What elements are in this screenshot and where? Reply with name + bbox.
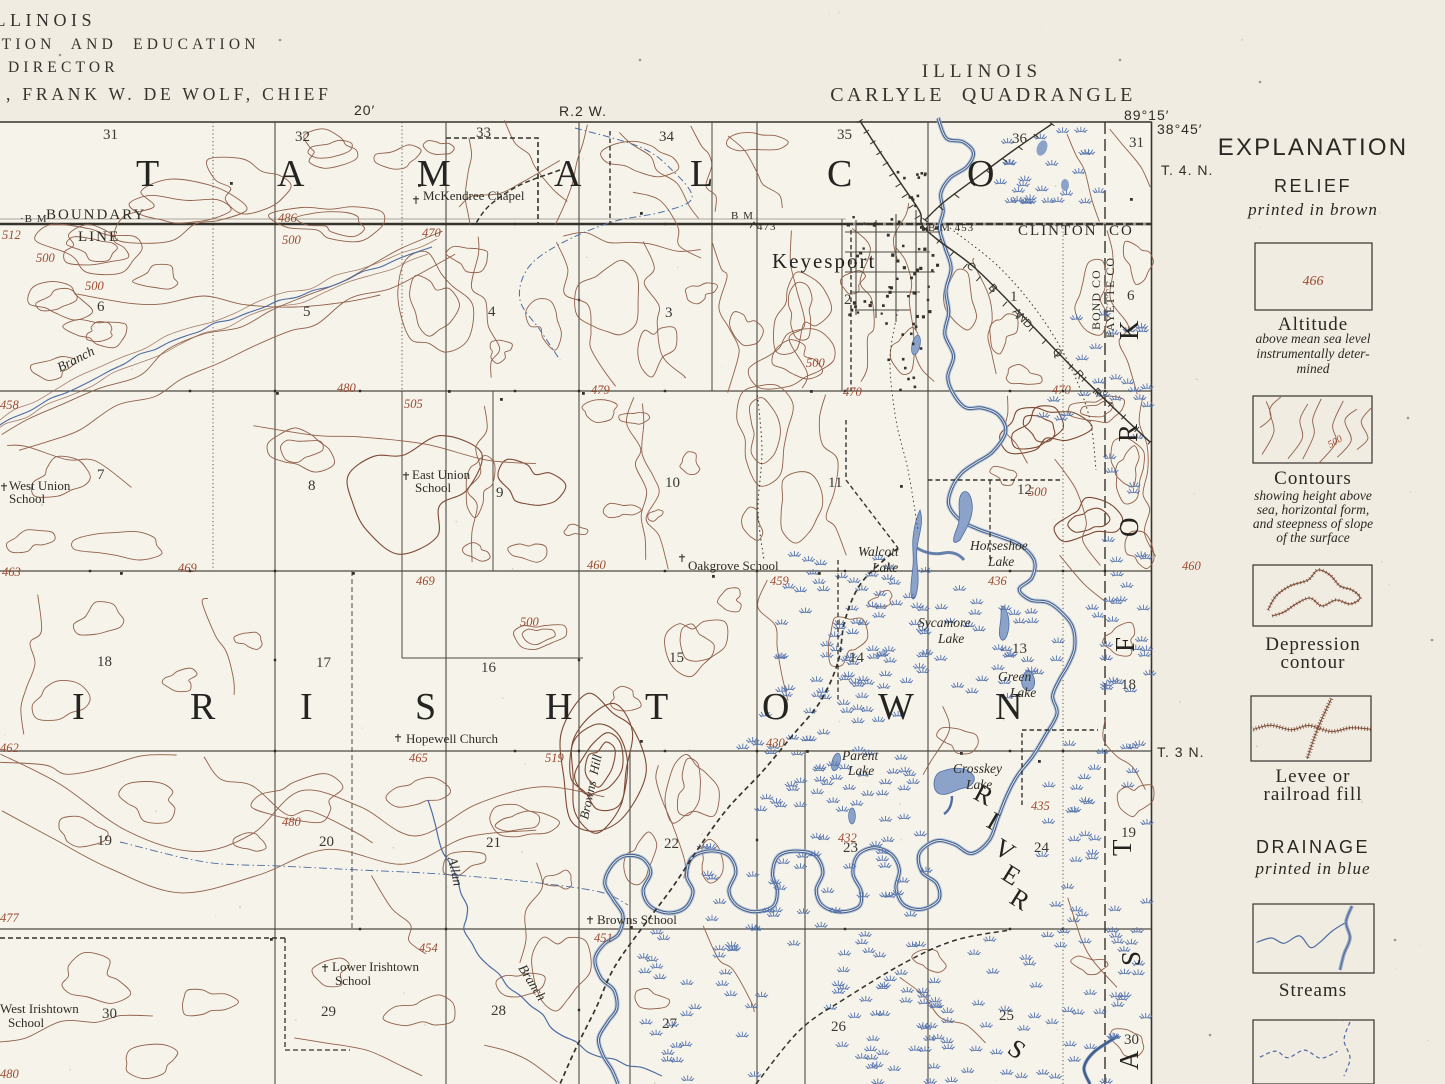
svg-text:500: 500 [282, 233, 302, 247]
svg-text:printed in blue: printed in blue [1254, 859, 1370, 878]
svg-text:A: A [1114, 1050, 1144, 1070]
svg-text:Walcott: Walcott [858, 544, 900, 559]
svg-text:15: 15 [669, 650, 684, 666]
svg-text:I: I [300, 686, 313, 728]
svg-text:451: 451 [594, 931, 613, 945]
svg-text:38°45′: 38°45′ [1157, 121, 1202, 137]
svg-text:519: 519 [545, 751, 565, 765]
svg-text:Lake: Lake [871, 560, 898, 575]
svg-text:and steepness of slope: and steepness of slope [1253, 516, 1373, 531]
svg-text:Lower Irishtown: Lower Irishtown [332, 959, 420, 974]
svg-text:sea, horizontal form,: sea, horizontal form, [1257, 502, 1370, 517]
svg-text:West Irishtown: West Irishtown [0, 1001, 79, 1016]
svg-text:CLINTON CO: CLINTON CO [1018, 223, 1134, 239]
svg-text:Keyesport: Keyesport [772, 249, 876, 273]
svg-text:5: 5 [303, 304, 311, 320]
svg-text:24: 24 [1034, 840, 1050, 856]
svg-text:32: 32 [295, 129, 310, 145]
svg-text:above mean sea level: above mean sea level [1255, 331, 1370, 346]
svg-text:480: 480 [337, 381, 357, 395]
svg-text:462: 462 [0, 741, 19, 755]
svg-text:showing height above: showing height above [1254, 488, 1372, 503]
svg-text:Lake: Lake [1009, 685, 1036, 700]
svg-text:500: 500 [36, 251, 56, 265]
svg-text:4: 4 [488, 304, 496, 320]
svg-text:470: 470 [843, 385, 863, 399]
svg-text:14: 14 [849, 650, 865, 666]
svg-text:ILLINOIS: ILLINOIS [922, 61, 1042, 82]
svg-text:505: 505 [404, 397, 423, 411]
svg-text:470: 470 [1052, 383, 1072, 397]
svg-text:17: 17 [316, 655, 332, 671]
svg-text:RELIEF: RELIEF [1274, 176, 1352, 196]
svg-text:BOND CO: BOND CO [1089, 269, 1103, 330]
svg-text:Horseshoe: Horseshoe [969, 538, 1028, 553]
svg-text:500: 500 [806, 356, 826, 370]
svg-text:Lake: Lake [965, 777, 992, 792]
svg-text:31: 31 [103, 127, 118, 143]
svg-text:19: 19 [97, 833, 112, 849]
svg-text:School: School [335, 973, 372, 988]
svg-text:30: 30 [102, 1006, 117, 1022]
svg-text:railroad fill: railroad fill [1264, 784, 1363, 805]
svg-text:Oakgrove School: Oakgrove School [688, 558, 779, 573]
svg-text:Parent: Parent [841, 748, 879, 763]
svg-text:I: I [72, 686, 85, 728]
svg-text:477: 477 [0, 911, 20, 925]
svg-text:A: A [554, 153, 582, 195]
svg-text:486: 486 [278, 211, 298, 225]
svg-text:Lake: Lake [847, 763, 874, 778]
svg-text:13: 13 [1012, 641, 1027, 657]
svg-text:430: 430 [766, 736, 786, 750]
svg-text:T. 3 N.: T. 3 N. [1157, 744, 1204, 760]
svg-text:18: 18 [1121, 677, 1136, 693]
svg-text:458: 458 [0, 398, 20, 412]
svg-text:·B M: ·B M [20, 213, 48, 225]
svg-text:EXPLANATION: EXPLANATION [1218, 134, 1408, 161]
svg-text:33: 33 [476, 125, 491, 141]
svg-text:DRAINAGE: DRAINAGE [1256, 837, 1370, 857]
svg-text:L: L [690, 153, 713, 195]
svg-text:Lake: Lake [987, 554, 1014, 569]
svg-text:6: 6 [97, 299, 105, 315]
svg-text:512: 512 [2, 228, 21, 242]
svg-text:21: 21 [486, 835, 501, 851]
svg-text:DIRECTOR: DIRECTOR [8, 59, 119, 76]
svg-text:of the surface: of the surface [1276, 530, 1350, 545]
svg-text:O: O [967, 153, 994, 195]
svg-text:printed in brown: printed in brown [1247, 200, 1378, 219]
svg-text:436: 436 [988, 574, 1008, 588]
svg-text:35: 35 [837, 127, 852, 143]
svg-text:36: 36 [1012, 131, 1028, 147]
svg-text:19: 19 [1121, 825, 1136, 841]
svg-text:469: 469 [178, 561, 198, 575]
svg-text:School: School [8, 1015, 45, 1030]
svg-text:LINE: LINE [78, 229, 120, 245]
svg-text:469: 469 [416, 574, 436, 588]
svg-text:T. 4. N.: T. 4. N. [1161, 162, 1213, 178]
svg-text:31: 31 [1129, 135, 1144, 151]
svg-text:22: 22 [664, 836, 679, 852]
svg-text:11: 11 [828, 475, 842, 491]
svg-text:466: 466 [1303, 274, 1324, 289]
svg-text:10: 10 [665, 475, 680, 491]
svg-text:Contours: Contours [1274, 468, 1352, 489]
svg-text:M: M [417, 153, 451, 195]
svg-text:500: 500 [520, 615, 540, 629]
svg-text:mined: mined [1297, 361, 1330, 376]
svg-text:6: 6 [1127, 288, 1135, 304]
svg-text:Green: Green [998, 669, 1031, 684]
svg-text:460: 460 [587, 558, 607, 572]
svg-text:20′: 20′ [354, 102, 375, 118]
svg-text:ILLINOIS: ILLINOIS [0, 10, 96, 30]
svg-text:463: 463 [2, 565, 21, 579]
svg-text:16: 16 [481, 660, 497, 676]
svg-text:465: 465 [409, 751, 428, 765]
svg-text:R: R [190, 686, 216, 728]
svg-text:FAYETTE CO: FAYETTE CO [1103, 257, 1117, 338]
svg-text:O: O [1114, 518, 1144, 538]
svg-text:T: T [1107, 839, 1137, 856]
svg-text:26: 26 [831, 1019, 847, 1035]
svg-text:School: School [415, 480, 452, 495]
svg-text:479: 479 [591, 383, 611, 397]
svg-text:Sycamore: Sycamore [918, 615, 971, 630]
svg-text:Browns School: Browns School [597, 912, 677, 927]
svg-text:Crosskey: Crosskey [953, 761, 1002, 776]
svg-text:8: 8 [308, 478, 316, 494]
svg-text:9: 9 [496, 485, 504, 501]
svg-text:instrumentally deter-: instrumentally deter- [1256, 346, 1370, 361]
svg-text:BOUNDARY: BOUNDARY [46, 207, 146, 223]
svg-text:29: 29 [321, 1004, 336, 1020]
svg-text:500: 500 [85, 279, 105, 293]
svg-text:34: 34 [659, 129, 675, 145]
svg-text:H: H [545, 686, 572, 728]
svg-text:ATION AND EDUCATION: ATION AND EDUCATION [0, 36, 260, 53]
svg-text:Hopewell Church: Hopewell Church [406, 731, 499, 746]
svg-text:480: 480 [282, 815, 302, 829]
svg-text:B M: B M [731, 210, 754, 222]
svg-text:2: 2 [844, 292, 852, 308]
svg-text:F: F [1110, 637, 1140, 652]
svg-text:School: School [9, 491, 46, 506]
svg-text:480: 480 [0, 1067, 20, 1081]
svg-text:T: T [136, 153, 159, 195]
svg-text:C: C [827, 153, 852, 195]
svg-text:T: T [645, 686, 668, 728]
svg-text:18: 18 [97, 654, 112, 670]
svg-text:25: 25 [999, 1008, 1014, 1024]
svg-text:20: 20 [319, 834, 334, 850]
svg-text:28: 28 [491, 1003, 506, 1019]
svg-text:3: 3 [665, 305, 673, 321]
svg-text:459: 459 [770, 574, 790, 588]
svg-text:S: S [415, 686, 436, 728]
svg-text:contour: contour [1280, 652, 1345, 673]
svg-text:27: 27 [662, 1016, 678, 1032]
svg-text:460: 460 [1182, 559, 1202, 573]
svg-text:R.2 W.: R.2 W. [559, 103, 607, 119]
svg-text:O: O [762, 686, 789, 728]
svg-text:454: 454 [419, 941, 438, 955]
svg-text:435: 435 [1031, 799, 1050, 813]
svg-text:7: 7 [97, 467, 105, 483]
svg-text:Lake: Lake [937, 631, 964, 646]
svg-text:1: 1 [1010, 289, 1018, 305]
svg-text:473: 473 [757, 221, 777, 233]
svg-text:S: S [1116, 951, 1146, 966]
svg-text:470: 470 [422, 226, 442, 240]
svg-text:Streams: Streams [1279, 980, 1347, 1001]
svg-text:500: 500 [1028, 485, 1048, 499]
svg-text:A: A [277, 153, 305, 195]
svg-text:, FRANK W. DE WOLF, CHIEF: , FRANK W. DE WOLF, CHIEF [6, 84, 332, 104]
svg-text:B M 453: B M 453 [928, 222, 974, 234]
svg-text:R: R [1113, 424, 1143, 442]
svg-text:K: K [1114, 320, 1144, 340]
svg-text:W: W [878, 686, 914, 728]
svg-text:30: 30 [1124, 1032, 1139, 1048]
svg-text:432: 432 [838, 831, 857, 845]
svg-text:CARLYLE QUADRANGLE: CARLYLE QUADRANGLE [830, 84, 1136, 106]
